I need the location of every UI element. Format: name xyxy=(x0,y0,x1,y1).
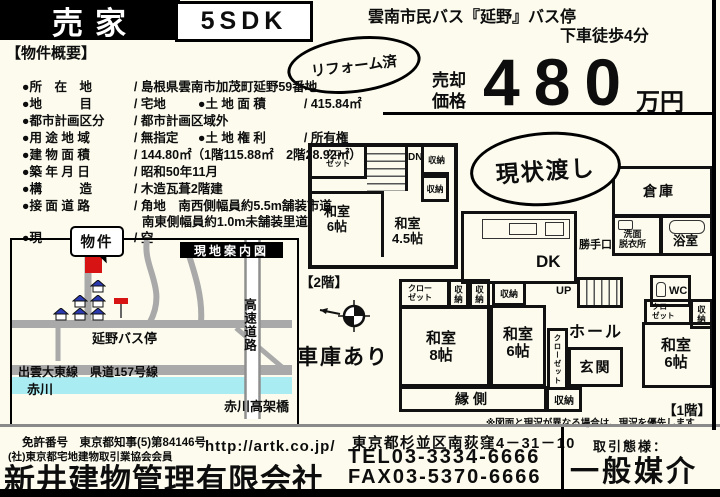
storage-2f-2: 収納 xyxy=(421,175,449,202)
flyer-page: 売家 5SDK 雲南市民バス『延野』バス停 下車徒歩4分 リフォーム済 売却 価… xyxy=(0,0,720,497)
room-2f-washitsu6: 和室6帖 xyxy=(324,205,350,235)
deal-type: 一般媒介 xyxy=(570,448,698,490)
fax-number: FAX03-5370-6666 xyxy=(348,466,541,489)
price-value: 480 xyxy=(483,44,635,120)
kitchen-counter xyxy=(482,219,570,239)
house-icon xyxy=(90,308,106,321)
wall xyxy=(381,191,384,257)
stairs-down-2f xyxy=(367,147,408,191)
bus-stop-pole xyxy=(120,304,122,318)
map-title: 現地案内図 xyxy=(180,242,283,258)
right-border xyxy=(712,0,716,430)
storage-2f-1: 収納 xyxy=(421,147,449,175)
closet-mid: クローゼット xyxy=(547,328,568,390)
company-url: http://artk.co.jp/ xyxy=(205,438,336,455)
room-washroom: 洗面脱衣所 xyxy=(612,215,662,256)
room-dk: DK xyxy=(461,211,577,284)
room-bathroom: 浴室 xyxy=(660,215,713,256)
sale-tag: 売家 xyxy=(0,0,180,40)
sink-icon xyxy=(509,223,537,235)
area-map: 現地案内図 高速道路 延野バス停 出雲大東線 県道157号線 赤川 赤川高架橋 xyxy=(10,238,299,426)
stairs-up-1f xyxy=(577,277,623,308)
stairs-up-label: UP xyxy=(556,285,571,297)
house-icon xyxy=(90,295,106,308)
bus-access-line2: 下車徒歩4分 xyxy=(560,22,649,46)
bridge-label: 赤川高架橋 xyxy=(224,396,289,415)
overview-title: 【物件概要】 xyxy=(6,42,96,63)
price-underline xyxy=(383,112,712,115)
price-label-line2: 価格 xyxy=(432,91,466,112)
bus-stop-label: 延野バス停 xyxy=(92,328,157,347)
license-number: 免許番号 東京都知事(5)第84146号 xyxy=(22,434,206,450)
kitchen-door-label: 勝手口 xyxy=(579,236,612,252)
asis-badge: 現状渡し xyxy=(468,127,624,211)
footer-separator xyxy=(0,424,720,427)
route-label: 出雲大東線 県道157号線 xyxy=(18,363,158,380)
room-washitsu8: 和室8帖 xyxy=(399,305,490,387)
bus-access-line1: 雲南市民バス『延野』バス停 xyxy=(368,3,576,27)
bathtub-icon xyxy=(669,220,705,234)
highway-label: 高速道路 xyxy=(240,298,259,352)
wall xyxy=(312,191,384,194)
room-genkan: 玄関 xyxy=(568,347,623,387)
property-callout: 物件 xyxy=(70,226,124,257)
room-washitsu6-right: 和室6帖 xyxy=(642,322,713,388)
price-label-line1: 売却 xyxy=(432,70,466,91)
floor-plan-2f: クローゼット DN 収納 収納 和室6帖 和室4.5帖 xyxy=(308,143,458,269)
hall-label: ホール xyxy=(569,318,623,342)
toilet-icon xyxy=(656,282,666,297)
room-washitsu6-mid: 和室6帖 xyxy=(490,305,546,387)
stove-icon xyxy=(545,222,564,236)
river-label: 赤川 xyxy=(27,379,53,398)
house-icon xyxy=(53,308,69,321)
storage-1f-c: 収納 xyxy=(492,281,526,306)
closet-2f: クローゼット xyxy=(312,147,367,179)
dk-label: DK xyxy=(536,252,561,272)
layout-badge: 5SDK xyxy=(175,1,313,42)
room-warehouse: 倉庫 xyxy=(612,166,713,217)
house-icon xyxy=(90,280,106,293)
price-label: 売却 価格 xyxy=(432,70,466,112)
compass-icon xyxy=(316,298,372,339)
room-2f-washitsu45: 和室4.5帖 xyxy=(392,217,423,247)
house-icon xyxy=(72,308,88,321)
footer-divider xyxy=(561,427,564,489)
floor-2f-label: 【2階】 xyxy=(300,271,348,291)
storage-1f-e: 収納 xyxy=(546,387,582,412)
bottom-bar xyxy=(0,489,720,497)
room-engawa: 縁側 xyxy=(399,386,547,412)
garage-note: 車庫あり xyxy=(297,341,389,371)
house-icon xyxy=(72,295,88,308)
